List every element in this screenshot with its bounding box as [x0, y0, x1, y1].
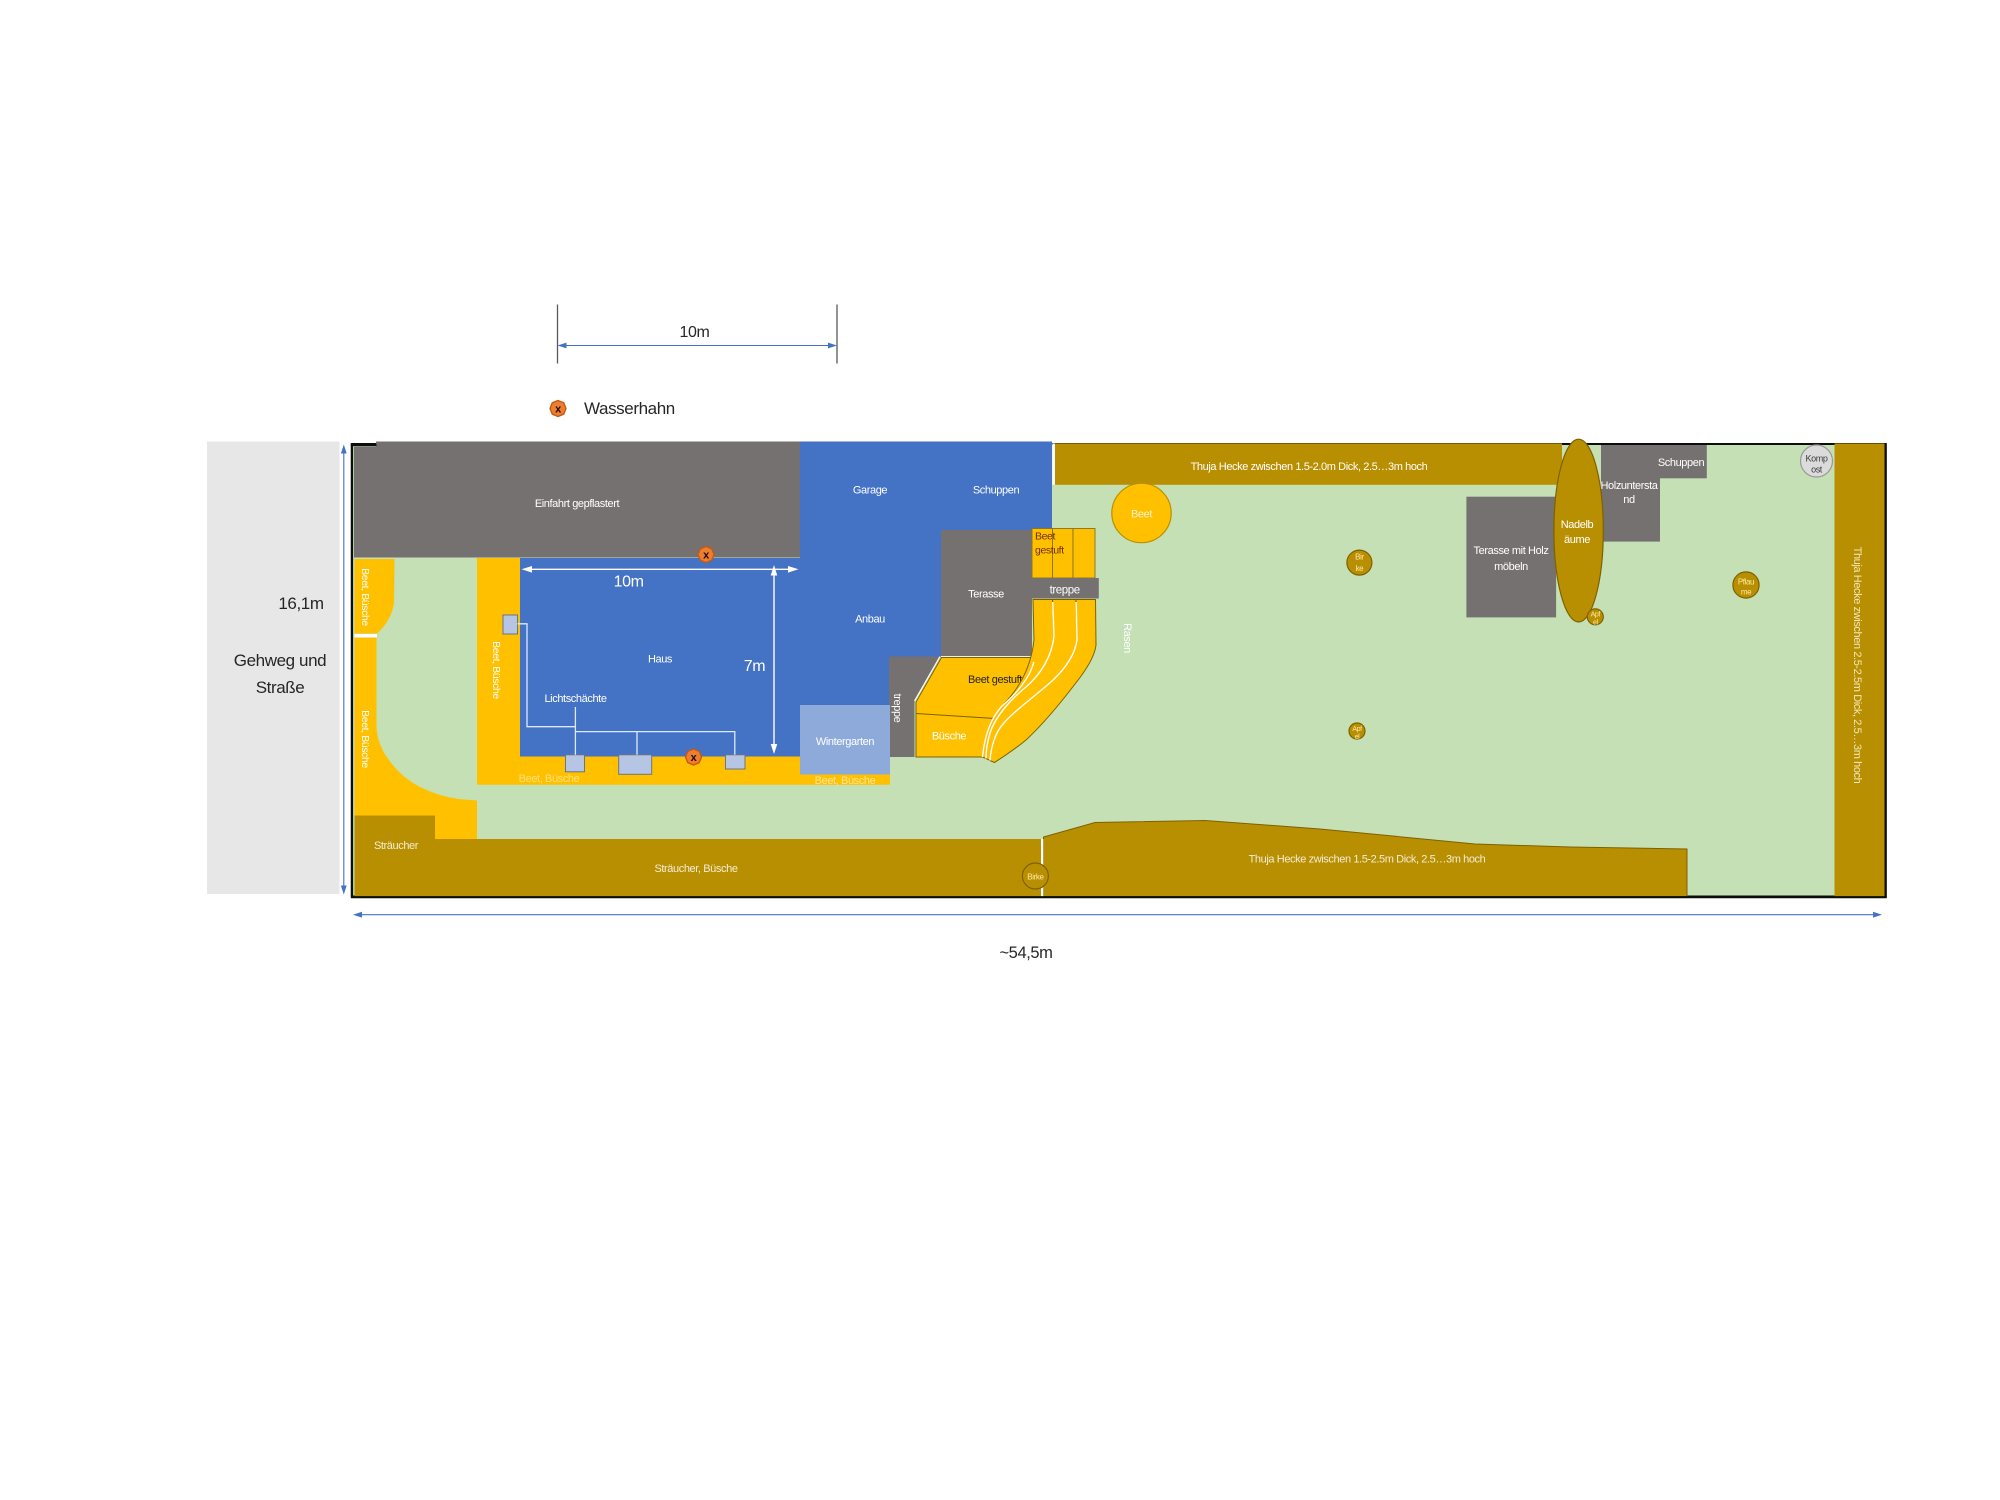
svg-text:Pflau: Pflau	[1738, 578, 1754, 587]
svg-text:Beet: Beet	[1035, 531, 1055, 543]
svg-text:Bir: Bir	[1355, 553, 1364, 562]
svg-text:Haus: Haus	[648, 654, 673, 666]
svg-text:nd: nd	[1623, 494, 1635, 506]
svg-text:7m: 7m	[744, 658, 765, 675]
svg-text:Rasen: Rasen	[1121, 623, 1133, 653]
svg-text:äume: äume	[1564, 534, 1590, 546]
svg-text:Beet, Büsche: Beet, Büsche	[490, 641, 502, 699]
svg-text:Gehweg und: Gehweg und	[234, 651, 326, 670]
svg-text:Wintergarten: Wintergarten	[816, 736, 874, 748]
svg-text:Lichtschächte: Lichtschächte	[544, 693, 606, 705]
svg-text:Apf: Apf	[1591, 612, 1601, 619]
svg-text:me: me	[1741, 588, 1752, 597]
svg-text:~54,5m: ~54,5m	[999, 944, 1052, 962]
svg-text:Beet: Beet	[1131, 509, 1152, 521]
svg-text:Sträucher, Büsche: Sträucher, Büsche	[654, 863, 737, 875]
svg-text:16,1m: 16,1m	[278, 594, 323, 613]
svg-text:ost: ost	[1811, 465, 1823, 475]
svg-text:Apf: Apf	[1352, 726, 1362, 733]
svg-text:Thuja Hecke zwischen 2.5-2.5m: Thuja Hecke zwischen 2.5-2.5m Dick, 2.5……	[1851, 547, 1863, 784]
svg-text:Terasse: Terasse	[968, 589, 1004, 601]
svg-text:Garage: Garage	[853, 485, 888, 497]
svg-text:Schuppen: Schuppen	[1658, 457, 1705, 469]
svg-text:Beet, Büsche: Beet, Büsche	[359, 710, 371, 768]
svg-text:Holzuntersta: Holzuntersta	[1601, 480, 1659, 492]
svg-text:Beet, Büsche: Beet, Büsche	[359, 568, 371, 626]
svg-text:Sträucher: Sträucher	[374, 840, 419, 852]
svg-text:Thuja Hecke zwischen 1.5-2.5m: Thuja Hecke zwischen 1.5-2.5m Dick, 2.5……	[1249, 854, 1486, 866]
svg-text:Einfahrt gepflastert: Einfahrt gepflastert	[535, 498, 620, 510]
svg-text:Komp: Komp	[1806, 454, 1828, 464]
svg-text:Wasserhahn: Wasserhahn	[584, 399, 675, 418]
svg-text:Birke: Birke	[1027, 873, 1044, 882]
svg-text:treppe: treppe	[1050, 585, 1080, 597]
svg-text:Büsche: Büsche	[932, 731, 967, 743]
svg-text:Anbau: Anbau	[855, 614, 885, 626]
svg-text:Terasse mit Holz: Terasse mit Holz	[1474, 545, 1549, 557]
svg-text:Schuppen: Schuppen	[973, 485, 1020, 497]
svg-text:gestuft: gestuft	[1035, 545, 1064, 557]
svg-text:Beet, Büsche: Beet, Büsche	[519, 773, 580, 785]
svg-text:10m: 10m	[680, 324, 710, 341]
svg-text:Beet, Büsche: Beet, Büsche	[815, 775, 876, 787]
svg-text:Nadelb: Nadelb	[1561, 519, 1594, 531]
svg-text:Straße: Straße	[256, 678, 305, 697]
svg-text:ke: ke	[1356, 564, 1365, 573]
svg-text:möbeln: möbeln	[1494, 561, 1528, 573]
svg-text:treppe: treppe	[891, 694, 903, 723]
svg-text:Thuja Hecke zwischen 1.5-2.0m: Thuja Hecke zwischen 1.5-2.0m Dick, 2.5……	[1191, 461, 1428, 473]
svg-text:10m: 10m	[614, 574, 644, 591]
svg-text:Beet gestuft: Beet gestuft	[968, 674, 1022, 686]
